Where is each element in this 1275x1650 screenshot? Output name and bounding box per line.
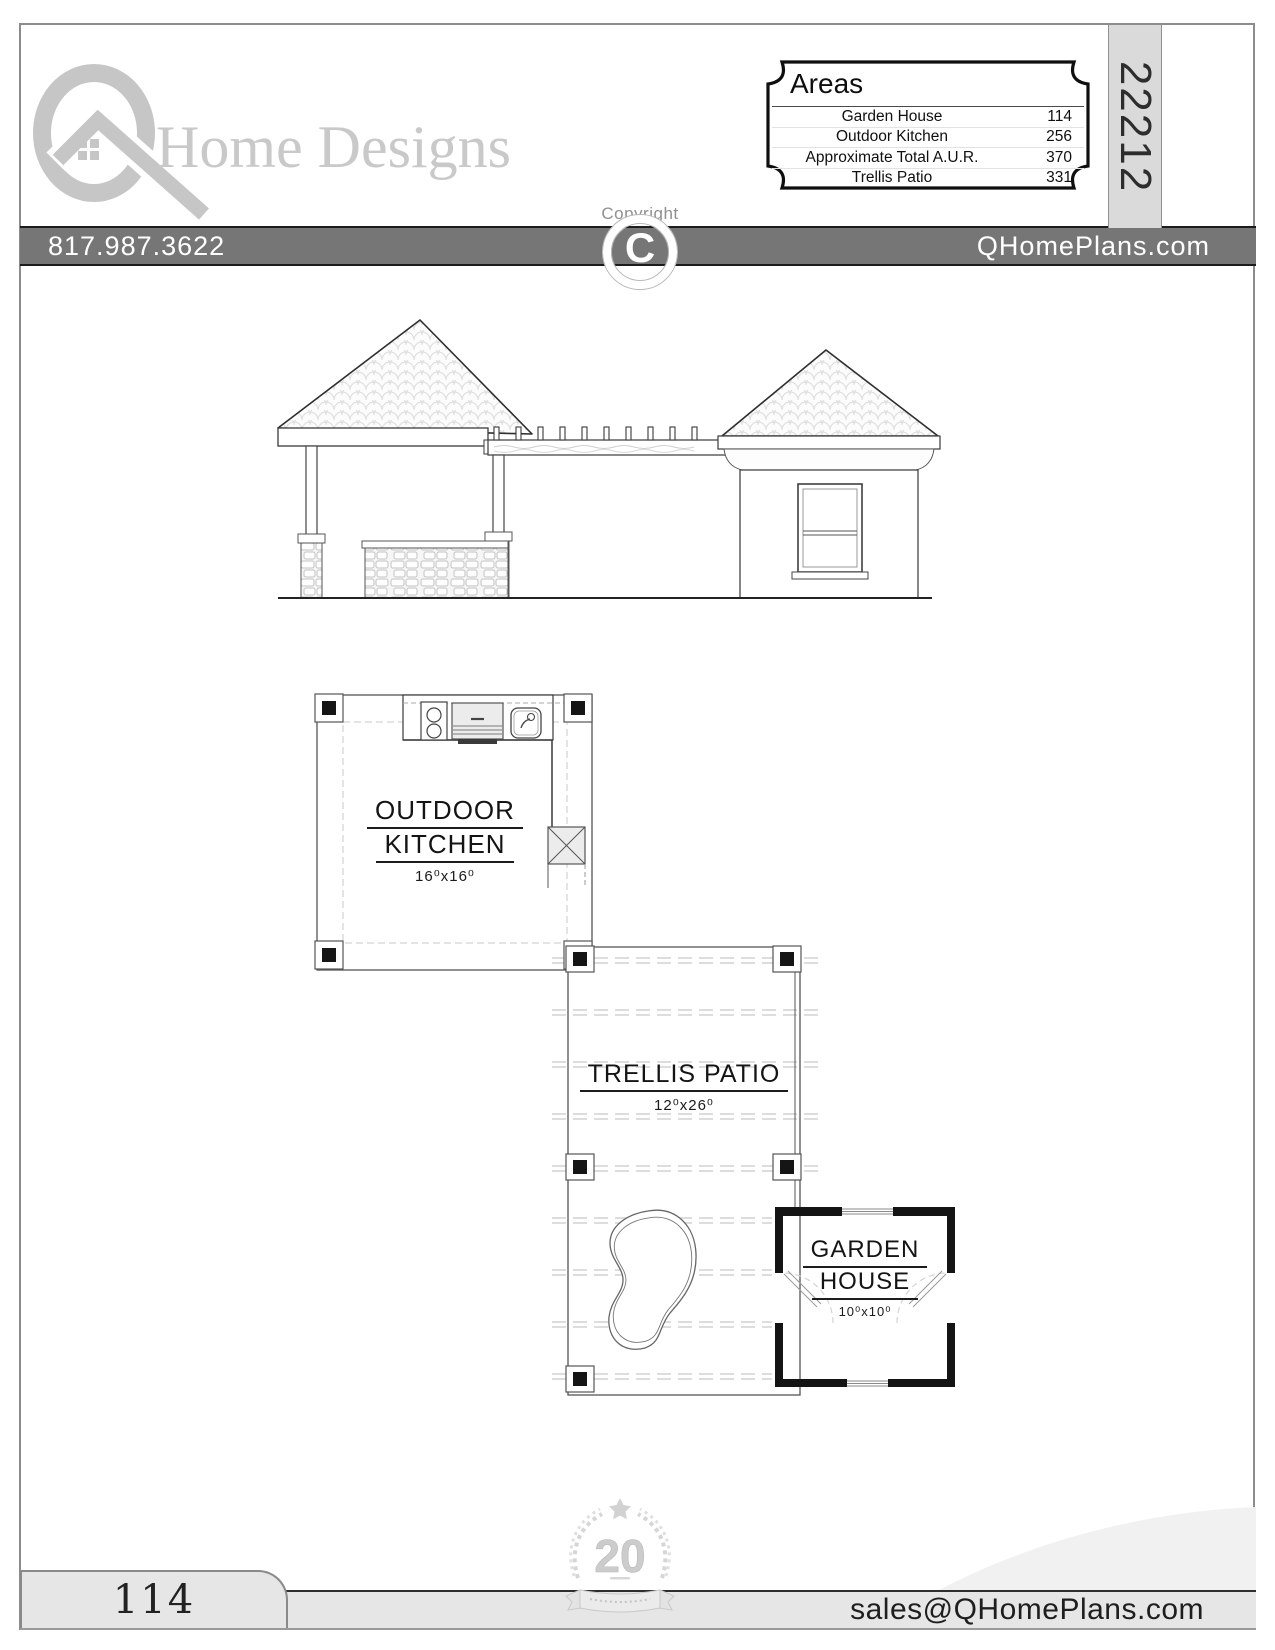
area-label: Trellis Patio — [772, 169, 1012, 187]
area-value: 256 — [1012, 128, 1078, 146]
areas-row: Approximate Total A.U.R. 370 — [772, 148, 1084, 169]
patio-posts — [566, 946, 801, 1392]
room-dimensions: 16⁰x16⁰ — [345, 867, 545, 885]
room-name: KITCHEN — [376, 830, 513, 863]
page-number-tab: 114 — [20, 1570, 288, 1628]
brand-logo: Home Designs — [26, 40, 586, 225]
area-label: Garden House — [772, 108, 1012, 126]
anniversary-number: 20 — [594, 1530, 645, 1582]
room-dimensions: 12⁰x26⁰ — [569, 1096, 799, 1114]
room-name: GARDEN — [803, 1237, 928, 1268]
website-link: QHomePlans.com — [977, 231, 1210, 262]
anniversary-badge-icon: 20 — [556, 1494, 684, 1626]
area-value: 370 — [1012, 149, 1078, 167]
garden-house-label: GARDEN HOUSE 10⁰x10⁰ — [780, 1236, 950, 1320]
sink-icon — [511, 708, 541, 738]
copyright-icon: C — [598, 210, 682, 294]
plan-sheet: Home Designs Copyright C 817.987.3622 QH… — [0, 0, 1275, 1650]
room-name: TRELLIS PATIO — [580, 1060, 789, 1092]
brand-name: Home Designs — [156, 114, 511, 180]
copyright-symbol: C — [625, 224, 655, 271]
room-name: HOUSE — [812, 1269, 918, 1300]
sales-email: sales@QHomePlans.com — [850, 1593, 1204, 1627]
plan-number: 22212 — [1110, 60, 1160, 192]
pool — [609, 1210, 696, 1349]
area-value: 114 — [1012, 108, 1078, 126]
elevation-drawing — [278, 320, 940, 598]
areas-row: Outdoor Kitchen 256 — [772, 128, 1084, 149]
area-label: Outdoor Kitchen — [772, 128, 1012, 146]
room-name: OUTDOOR — [367, 796, 523, 829]
area-value: 331 — [1012, 169, 1078, 187]
area-label: Approximate Total A.U.R. — [772, 149, 1012, 167]
grill-icon — [452, 703, 503, 744]
room-dimensions: 10⁰x10⁰ — [780, 1304, 950, 1320]
areas-row: Garden House 114 — [772, 107, 1084, 128]
phone-number: 817.987.3622 — [48, 231, 225, 262]
areas-title: Areas — [772, 64, 1084, 104]
page-number: 114 — [113, 1577, 195, 1623]
areas-panel: Areas Garden House 114 Outdoor Kitchen 2… — [762, 58, 1094, 192]
trellis-patio-label: TRELLIS PATIO 12⁰x26⁰ — [569, 1060, 799, 1114]
outdoor-kitchen-label: OUTDOOR KITCHEN 16⁰x16⁰ — [345, 795, 545, 885]
areas-row: Trellis Patio 331 — [772, 169, 1084, 189]
plan-number-strip: 22212 — [1108, 25, 1162, 228]
footer-swoosh — [935, 1507, 1256, 1592]
